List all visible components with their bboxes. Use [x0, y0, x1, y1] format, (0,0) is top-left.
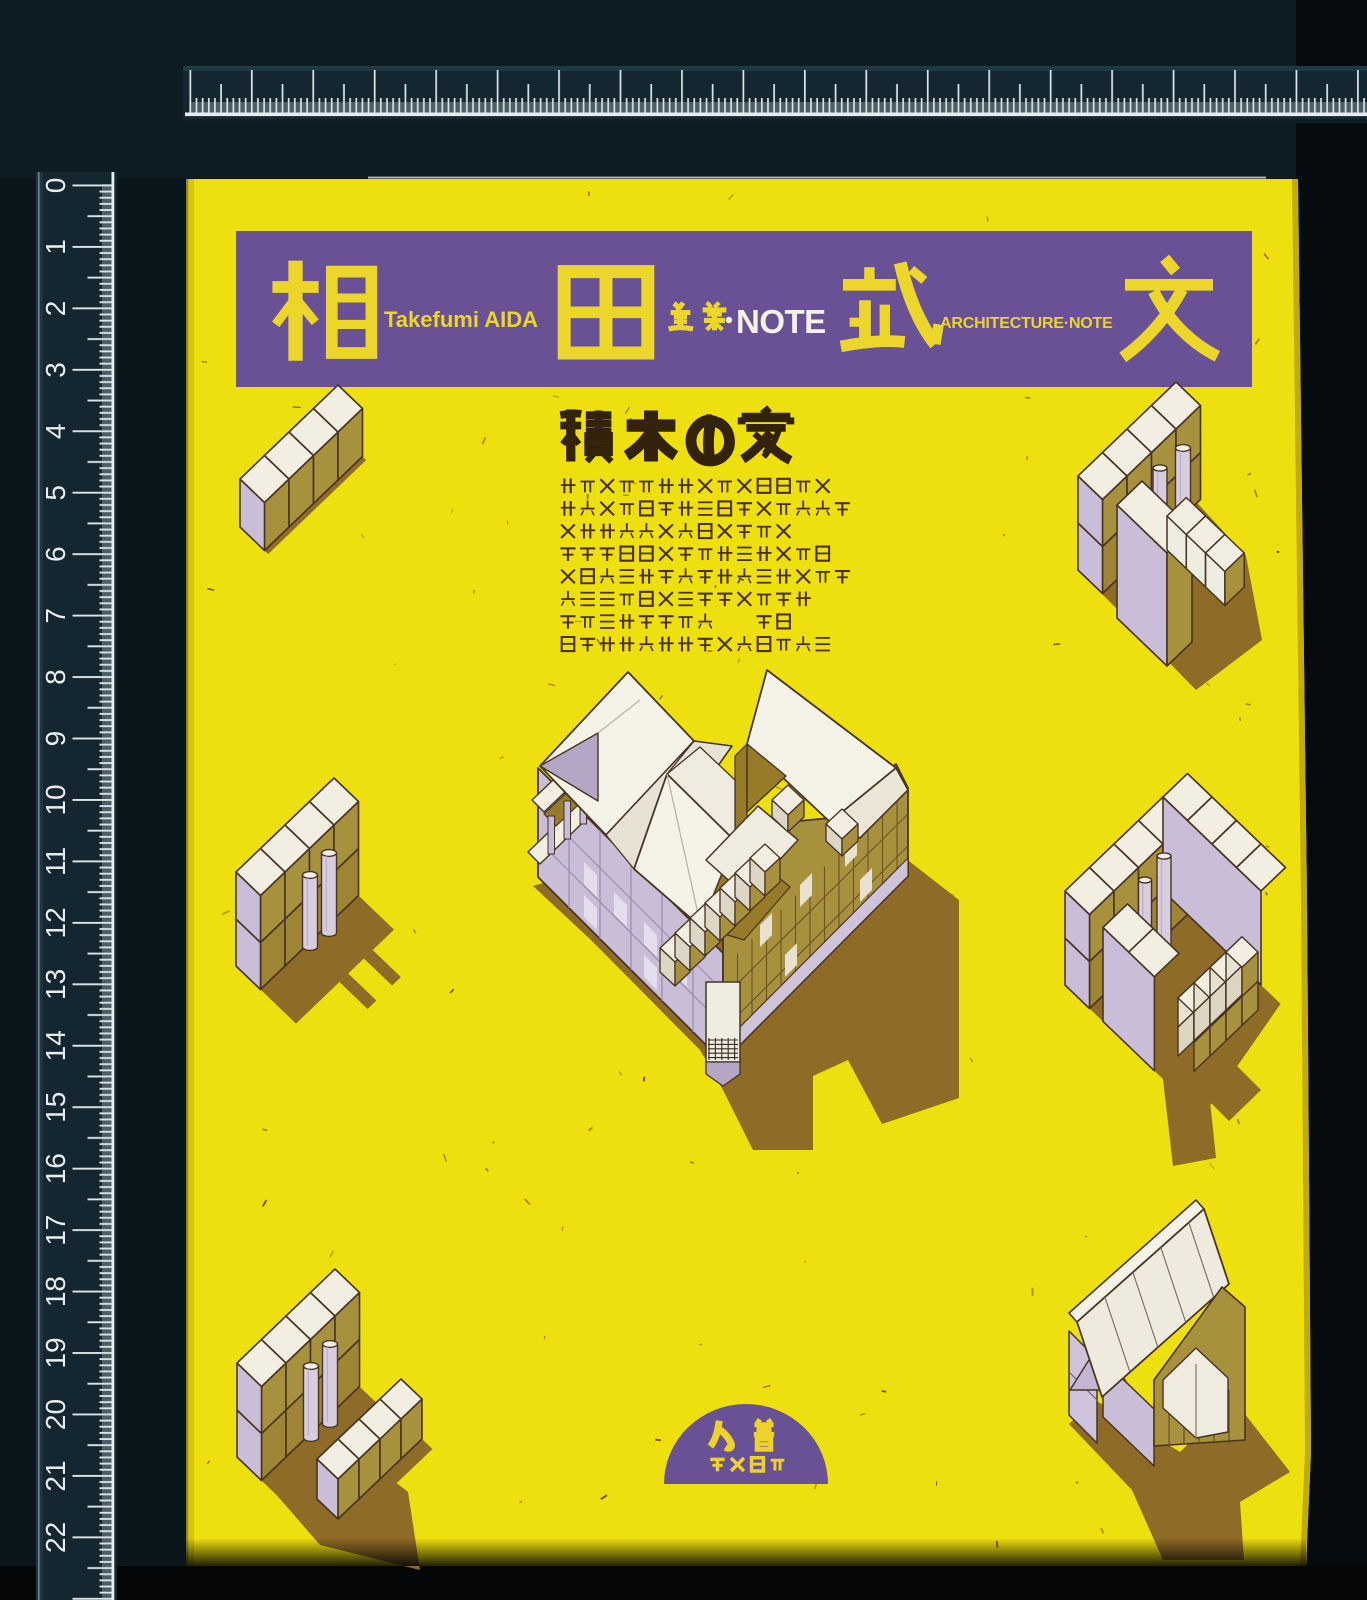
svg-text:17: 17: [40, 1215, 71, 1246]
svg-text:5: 5: [40, 485, 71, 501]
svg-text:19: 19: [40, 1337, 71, 1368]
svg-text:13: 13: [40, 969, 71, 1000]
svg-text:16: 16: [40, 1153, 71, 1184]
svg-text:4: 4: [40, 424, 71, 440]
svg-text:15: 15: [40, 1092, 71, 1123]
svg-text:Takefumi AIDA: Takefumi AIDA: [384, 307, 538, 332]
svg-text:21: 21: [40, 1460, 71, 1491]
svg-text:1: 1: [40, 239, 71, 255]
svg-text:14: 14: [40, 1030, 71, 1061]
svg-text:8: 8: [40, 669, 71, 685]
svg-text:2: 2: [40, 301, 71, 317]
svg-text:9: 9: [40, 731, 71, 747]
svg-text:22: 22: [40, 1522, 71, 1553]
svg-text:20: 20: [40, 1399, 71, 1430]
svg-text:12: 12: [40, 907, 71, 938]
svg-text:3: 3: [40, 362, 71, 378]
svg-text:0: 0: [40, 178, 71, 194]
svg-text:NOTE: NOTE: [736, 303, 826, 340]
svg-text:ARCHITECTURE·NOTE: ARCHITECTURE·NOTE: [940, 315, 1113, 332]
svg-text:7: 7: [40, 608, 71, 624]
svg-text:18: 18: [40, 1276, 71, 1307]
svg-text:10: 10: [40, 784, 71, 815]
svg-text:11: 11: [40, 847, 71, 876]
svg-text:6: 6: [40, 546, 71, 562]
